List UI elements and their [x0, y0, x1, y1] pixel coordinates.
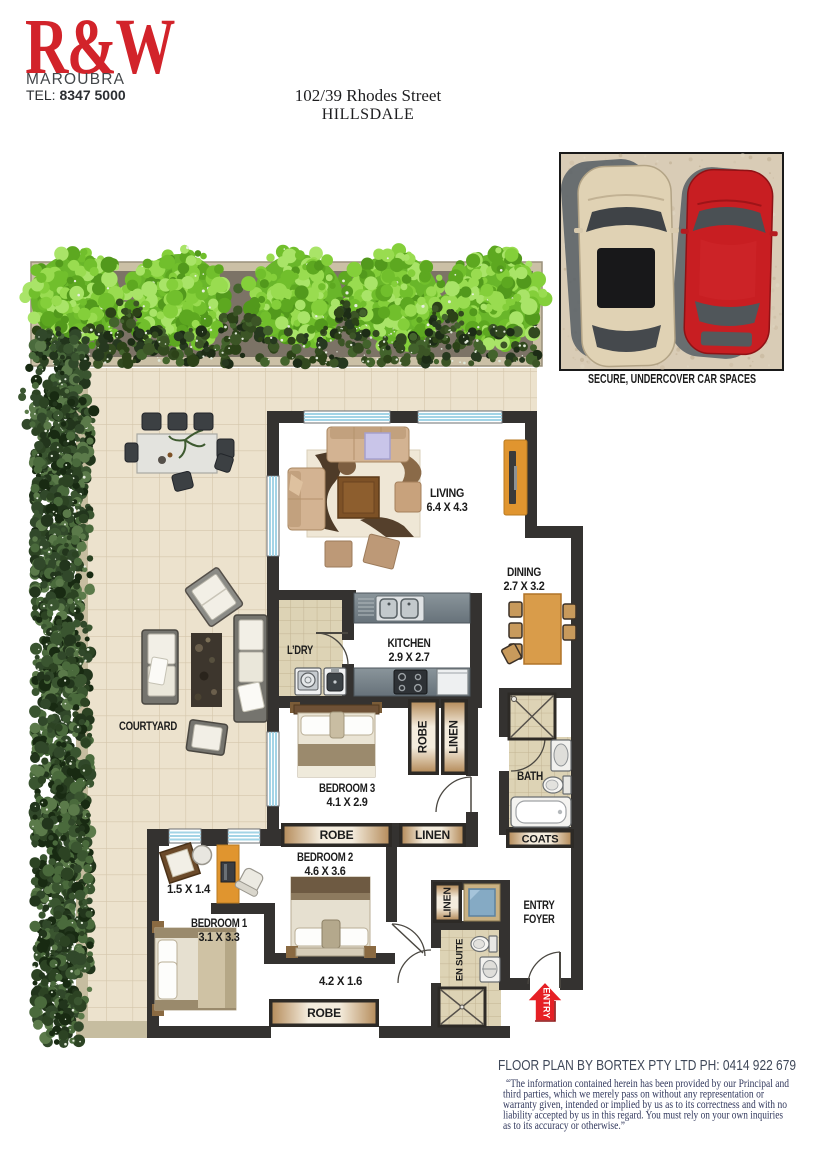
- svg-text:BEDROOM 2: BEDROOM 2: [297, 852, 353, 864]
- svg-text:LINEN: LINEN: [415, 828, 450, 842]
- svg-text:KITCHEN: KITCHEN: [388, 638, 431, 650]
- svg-text:BEDROOM 1: BEDROOM 1: [191, 918, 248, 930]
- svg-text:4.6 X 3.6: 4.6 X 3.6: [305, 866, 346, 878]
- svg-text:FLOOR PLAN BY BORTEX PTY LTD P: FLOOR PLAN BY BORTEX PTY LTD PH: 0414 92…: [498, 1057, 796, 1074]
- svg-text:6.4 X 4.3: 6.4 X 4.3: [427, 502, 468, 514]
- svg-text:COATS: COATS: [522, 834, 559, 846]
- svg-text:ROBE: ROBE: [418, 720, 430, 753]
- svg-text:BEDROOM 3: BEDROOM 3: [319, 783, 375, 795]
- svg-text:BATH: BATH: [517, 771, 543, 783]
- svg-text:ROBE: ROBE: [307, 1006, 341, 1020]
- svg-text:ENTRY: ENTRY: [542, 987, 552, 1018]
- svg-text:4.1 X 2.9: 4.1 X 2.9: [327, 797, 368, 809]
- svg-text:DINING: DINING: [507, 567, 541, 579]
- svg-text:ENTRY: ENTRY: [524, 900, 556, 912]
- svg-text:102/39 Rhodes Street: 102/39 Rhodes Street: [295, 86, 442, 105]
- svg-text:as to its accuracy or otherwis: as to its accuracy or otherwise.”: [503, 1120, 625, 1132]
- svg-text:HILLSDALE: HILLSDALE: [322, 106, 414, 123]
- svg-text:2.9 X 2.7: 2.9 X 2.7: [389, 652, 430, 664]
- svg-text:FOYER: FOYER: [524, 914, 556, 926]
- svg-text:4.2 X 1.6: 4.2 X 1.6: [319, 976, 362, 988]
- svg-text:ROBE: ROBE: [320, 828, 354, 842]
- svg-text:COURTYARD: COURTYARD: [119, 719, 177, 733]
- svg-text:2.7 X 3.2: 2.7 X 3.2: [504, 581, 545, 593]
- svg-text:SECURE, UNDERCOVER CAR SPACES: SECURE, UNDERCOVER CAR SPACES: [588, 372, 756, 386]
- svg-text:EN SUITE: EN SUITE: [455, 939, 466, 981]
- svg-text:TEL: 8347 5000: TEL: 8347 5000: [26, 87, 126, 103]
- svg-text:L’DRY: L’DRY: [287, 645, 314, 657]
- svg-text:MAROUBRA: MAROUBRA: [26, 71, 125, 88]
- svg-text:1.5 X 1.4: 1.5 X 1.4: [167, 884, 211, 896]
- svg-text:LIVING: LIVING: [430, 488, 464, 500]
- svg-text:LINEN: LINEN: [449, 720, 461, 754]
- svg-text:3.1 X 3.3: 3.1 X 3.3: [199, 932, 240, 944]
- svg-text:LINEN: LINEN: [441, 887, 453, 918]
